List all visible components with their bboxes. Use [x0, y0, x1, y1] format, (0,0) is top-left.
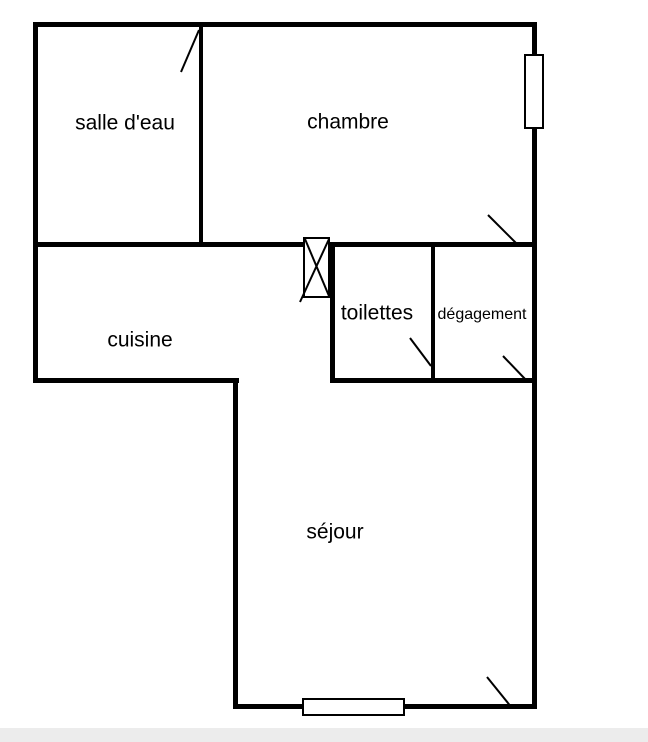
- wall-toilet-left: [330, 242, 335, 383]
- wall-toilet-bottom: [330, 378, 536, 383]
- wall-living-left: [233, 378, 238, 709]
- floorplan-canvas: salle d'eau chambre cuisine toilettes dé…: [0, 0, 648, 742]
- door-swing-toilettes: [410, 338, 431, 366]
- wall-toilet-hall-divider: [431, 247, 435, 378]
- duct-box-icon: [303, 237, 330, 298]
- wall-outer-top: [33, 22, 536, 27]
- wall-mid-horizontal: [33, 242, 536, 247]
- door-swing-salle-deau: [181, 30, 199, 72]
- room-label-toilettes: toilettes: [341, 303, 413, 324]
- wall-outer-left: [33, 22, 38, 383]
- room-label-chambre: chambre: [307, 112, 389, 133]
- room-label-sejour: séjour: [306, 522, 363, 543]
- room-label-salle-deau: salle d'eau: [75, 113, 175, 134]
- window-icon-right: [524, 54, 544, 129]
- footer-bar: [0, 728, 648, 742]
- room-label-cuisine: cuisine: [107, 330, 172, 351]
- room-label-degagement: dégagement: [438, 307, 527, 323]
- wall-kitchen-bottom: [33, 378, 239, 383]
- door-swing-degagement: [503, 356, 526, 380]
- door-swing-chambre: [488, 215, 518, 245]
- wall-bedroom-divider: [199, 27, 203, 242]
- window-icon-bottom: [302, 698, 405, 716]
